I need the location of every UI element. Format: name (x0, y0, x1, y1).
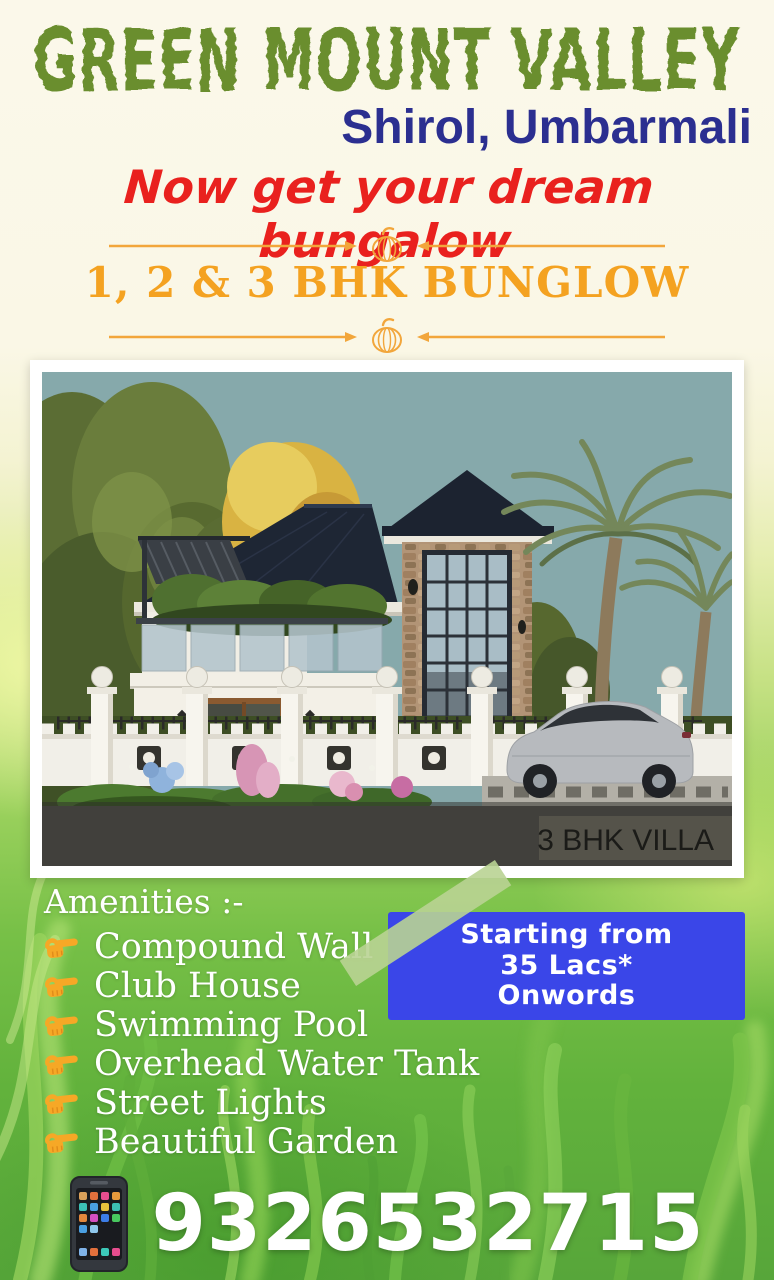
pointing-finger-icon (44, 1128, 80, 1156)
list-item: Beautiful Garden (44, 1122, 479, 1161)
amenity-label: Street Lights (94, 1083, 327, 1123)
pumpkin-ornament-icon (373, 319, 401, 352)
wall-lamp (408, 579, 418, 595)
pointing-finger-icon (44, 1089, 80, 1117)
glass-balustrade (136, 618, 388, 671)
real-estate-flyer: GREEN MOUNT VALLEY Shirol, Umbarmali Now… (0, 0, 774, 1280)
pumpkin-ornament-icon (373, 228, 401, 261)
divider-line-right (417, 241, 665, 251)
amenity-label: Beautiful Garden (94, 1122, 398, 1162)
ornament-divider-bottom (107, 315, 667, 359)
pricing-line: Starting from (460, 920, 672, 951)
list-item: Overhead Water Tank (44, 1044, 479, 1083)
offer-text: 1, 2 & 3 BHK BUNGLOW (0, 258, 774, 307)
project-title-art: GREEN MOUNT VALLEY (17, 10, 757, 110)
terrace-floor-band (130, 673, 392, 688)
amenity-label: Swimming Pool (94, 1005, 368, 1045)
divider-line-right (417, 332, 665, 342)
pointing-finger-icon (44, 933, 80, 961)
page-title: GREEN MOUNT VALLEY (33, 11, 741, 110)
villa-caption: 3 BHK VILLA (537, 824, 714, 857)
pricing-line: Onwords (498, 981, 636, 1012)
wall-lamp (518, 620, 526, 634)
amenity-label: Club House (94, 966, 301, 1006)
amenity-label: Compound Wall (94, 927, 373, 967)
pointing-finger-icon (44, 1050, 80, 1078)
villa-photo: 3 BHK VILLA (42, 372, 732, 866)
phone-number: 9326532715 (152, 1179, 705, 1269)
location-subtitle: Shirol, Umbarmali (0, 100, 752, 155)
list-item: Street Lights (44, 1083, 479, 1122)
contact-row: 9326532715 (0, 1176, 774, 1272)
smartphone-icon (70, 1176, 128, 1272)
amenity-label: Overhead Water Tank (94, 1044, 479, 1084)
pointing-finger-icon (44, 972, 80, 1000)
divider-line-left (109, 241, 357, 251)
villa-photo-frame: 3 BHK VILLA (30, 360, 744, 878)
pricing-text: Starting from 35 Lacs* Onwords (388, 912, 745, 1020)
pricing-badge: Starting from 35 Lacs* Onwords (388, 912, 745, 1020)
divider-line-left (109, 332, 357, 342)
pointing-finger-icon (44, 1011, 80, 1039)
road: 3 BHK VILLA (42, 802, 732, 866)
pricing-line: 35 Lacs* (500, 951, 633, 982)
